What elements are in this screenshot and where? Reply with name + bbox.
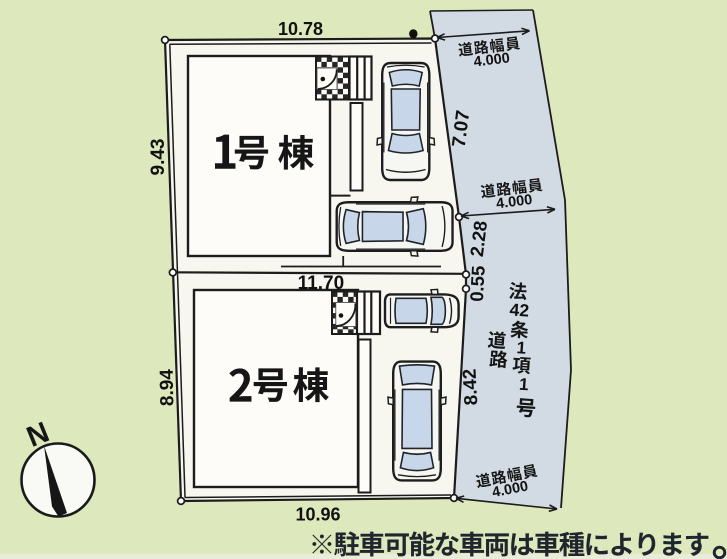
svg-text:8.94: 8.94 (157, 368, 179, 406)
svg-text:2.28: 2.28 (466, 220, 491, 258)
svg-text:8.42: 8.42 (458, 368, 481, 406)
svg-text:1: 1 (516, 338, 527, 358)
svg-text:0.55: 0.55 (466, 265, 489, 302)
svg-text:9.43: 9.43 (148, 139, 169, 176)
svg-text:11.70: 11.70 (298, 273, 345, 294)
svg-text:1: 1 (518, 375, 529, 395)
svg-text:10.96: 10.96 (295, 504, 340, 524)
svg-text:42: 42 (509, 299, 530, 320)
svg-text:10.78: 10.78 (278, 19, 323, 39)
